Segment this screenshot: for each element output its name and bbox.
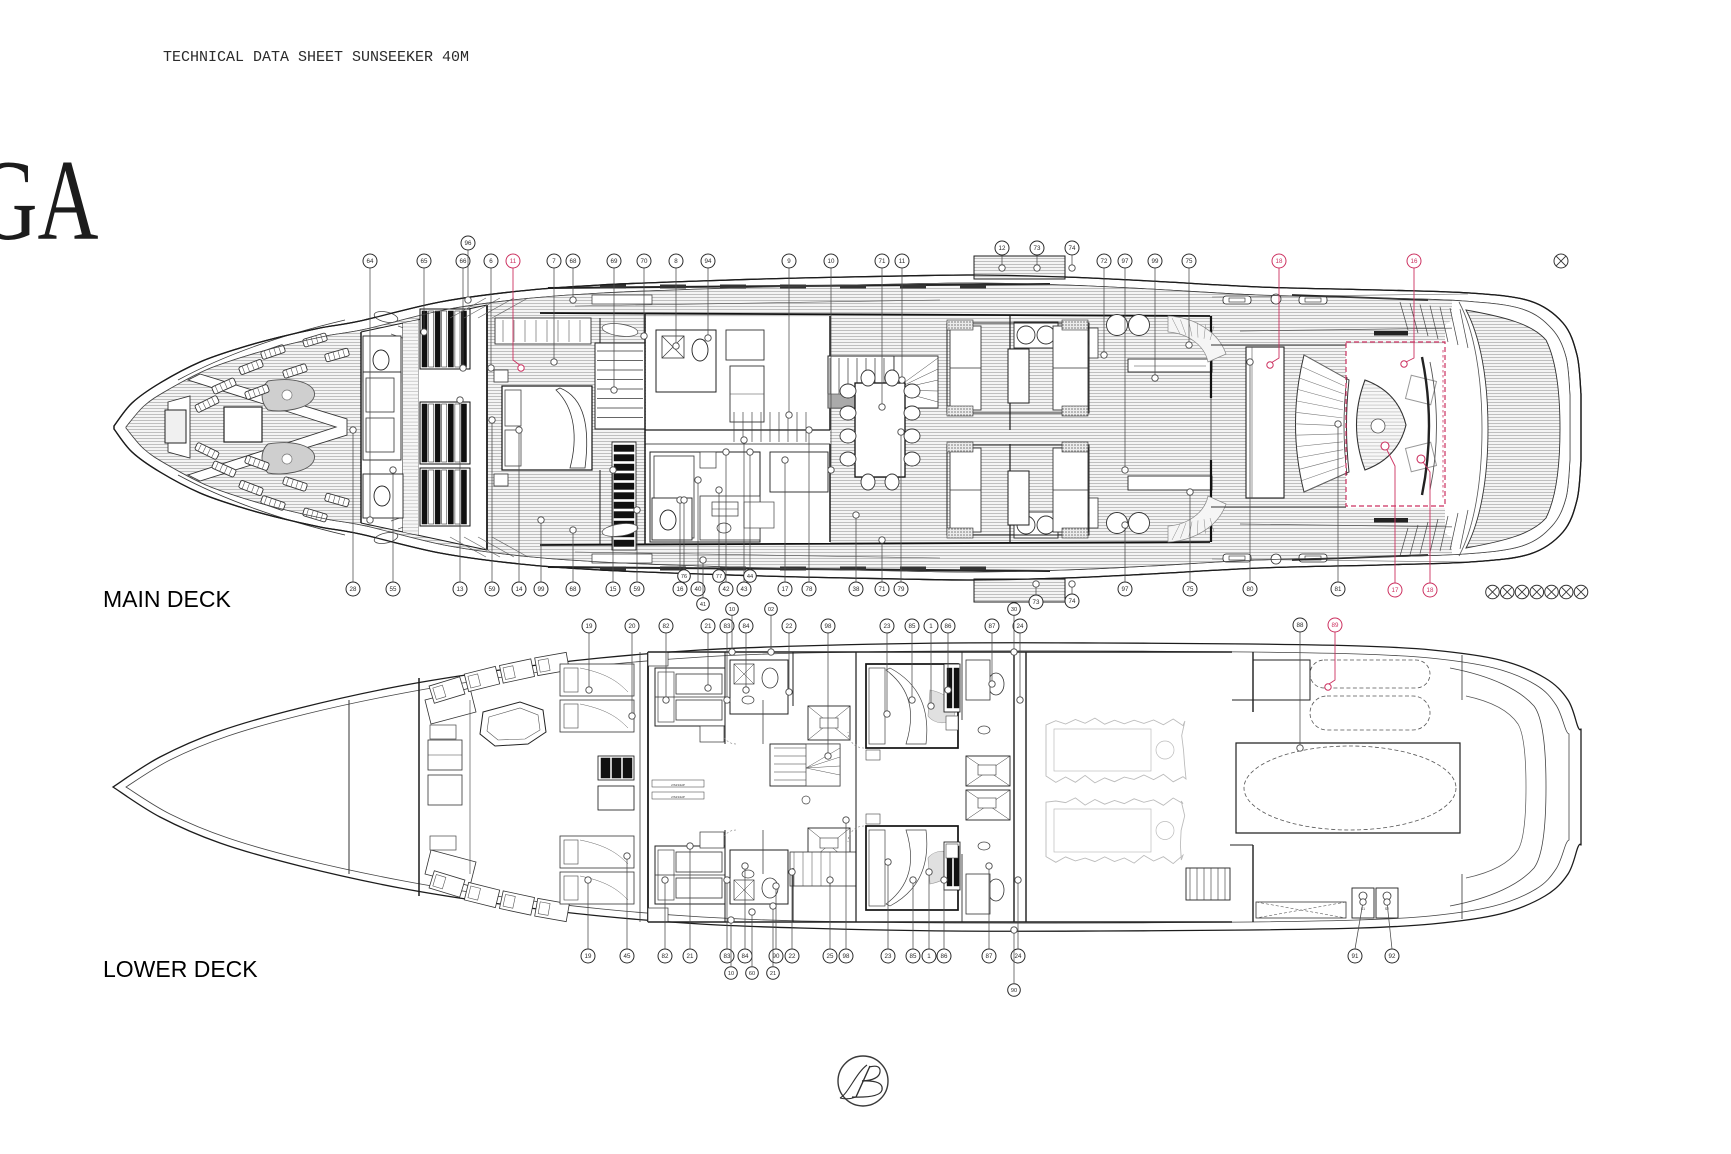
svg-text:43: 43 — [741, 586, 748, 593]
svg-text:96: 96 — [465, 240, 472, 247]
svg-text:87: 87 — [986, 953, 993, 960]
svg-text:55: 55 — [390, 586, 397, 593]
svg-text:10: 10 — [728, 971, 734, 977]
svg-text:18: 18 — [1276, 258, 1283, 265]
svg-text:30: 30 — [1011, 607, 1017, 613]
svg-text:45: 45 — [624, 953, 631, 960]
svg-text:38: 38 — [853, 586, 860, 593]
svg-text:TECHNICAL DATA SHEET SUNSEEKER: TECHNICAL DATA SHEET SUNSEEKER 40M — [163, 49, 469, 66]
svg-text:16: 16 — [677, 586, 684, 593]
svg-text:81: 81 — [1335, 586, 1342, 593]
svg-text:89: 89 — [1332, 622, 1339, 629]
svg-text:88: 88 — [1297, 622, 1304, 629]
svg-text:86: 86 — [945, 623, 952, 630]
svg-text:82: 82 — [662, 953, 669, 960]
svg-text:94: 94 — [705, 258, 712, 265]
svg-text:17: 17 — [782, 586, 789, 593]
svg-text:19: 19 — [585, 953, 592, 960]
svg-text:21: 21 — [770, 971, 776, 977]
svg-text:44: 44 — [747, 574, 753, 580]
svg-text:21: 21 — [687, 953, 694, 960]
svg-text:74: 74 — [1069, 245, 1076, 252]
svg-text:24: 24 — [1017, 623, 1024, 630]
svg-text:02: 02 — [768, 607, 774, 613]
svg-text:20: 20 — [629, 623, 636, 630]
svg-text:73: 73 — [1033, 599, 1040, 606]
svg-text:77: 77 — [716, 574, 722, 580]
svg-text:GA: GA — [0, 136, 99, 264]
svg-text:69: 69 — [611, 258, 618, 265]
svg-text:80: 80 — [1247, 586, 1254, 593]
svg-text:97: 97 — [1122, 586, 1129, 593]
svg-text:9: 9 — [787, 258, 791, 265]
svg-text:24: 24 — [1015, 953, 1022, 960]
svg-text:68: 68 — [570, 258, 577, 265]
svg-text:98: 98 — [825, 623, 832, 630]
svg-text:76: 76 — [681, 574, 687, 580]
svg-text:11: 11 — [899, 258, 906, 265]
svg-text:68: 68 — [570, 586, 577, 593]
svg-text:LOWER DECK: LOWER DECK — [103, 956, 258, 982]
svg-text:84: 84 — [743, 623, 750, 630]
svg-text:23: 23 — [884, 623, 891, 630]
svg-text:83: 83 — [724, 953, 731, 960]
svg-text:1: 1 — [929, 623, 933, 630]
svg-text:90: 90 — [773, 953, 780, 960]
svg-text:17: 17 — [1392, 587, 1399, 594]
svg-text:74: 74 — [1069, 598, 1076, 605]
svg-text:83: 83 — [724, 623, 731, 630]
svg-text:40: 40 — [695, 586, 702, 593]
svg-text:65: 65 — [421, 258, 428, 265]
svg-text:S2: S2 — [1385, 907, 1389, 911]
svg-text:25: 25 — [827, 953, 834, 960]
svg-text:85: 85 — [910, 953, 917, 960]
svg-text:99: 99 — [538, 586, 545, 593]
svg-text:72: 72 — [1101, 258, 1108, 265]
svg-text:13: 13 — [457, 586, 464, 593]
svg-text:22: 22 — [789, 953, 796, 960]
svg-text:90: 90 — [1011, 988, 1017, 994]
svg-text:82: 82 — [663, 623, 670, 630]
svg-text:41: 41 — [700, 602, 706, 608]
svg-text:7: 7 — [552, 258, 556, 265]
svg-text:14: 14 — [516, 586, 523, 593]
svg-text:59: 59 — [634, 586, 641, 593]
svg-text:10: 10 — [828, 258, 835, 265]
svg-text:71: 71 — [879, 586, 886, 593]
svg-text:59: 59 — [489, 586, 496, 593]
svg-text:19: 19 — [586, 623, 593, 630]
svg-text:99: 99 — [1152, 258, 1159, 265]
svg-text:60: 60 — [749, 971, 755, 977]
svg-text:6: 6 — [489, 258, 493, 265]
svg-text:21: 21 — [705, 623, 712, 630]
svg-text:18: 18 — [1427, 587, 1434, 594]
svg-text:79: 79 — [898, 586, 905, 593]
svg-text:64: 64 — [367, 258, 374, 265]
svg-text:71: 71 — [879, 258, 886, 265]
svg-text:10: 10 — [729, 607, 735, 613]
svg-text:11: 11 — [510, 258, 517, 265]
svg-text:8: 8 — [674, 258, 678, 265]
svg-text:16: 16 — [1411, 258, 1418, 265]
svg-text:2/S234HP: 2/S234HP — [671, 783, 685, 787]
svg-text:MAIN DECK: MAIN DECK — [103, 586, 231, 612]
svg-text:92: 92 — [1389, 953, 1396, 960]
svg-text:73: 73 — [1034, 245, 1041, 252]
svg-text:12: 12 — [999, 245, 1006, 252]
svg-text:97: 97 — [1122, 258, 1129, 265]
svg-text:75: 75 — [1186, 258, 1193, 265]
svg-text:98: 98 — [843, 953, 850, 960]
svg-text:75: 75 — [1187, 586, 1194, 593]
svg-text:70: 70 — [641, 258, 648, 265]
svg-text:2/S234HP: 2/S234HP — [671, 795, 685, 799]
svg-text:28: 28 — [350, 586, 357, 593]
svg-text:78: 78 — [806, 586, 813, 593]
svg-text:15: 15 — [610, 586, 617, 593]
svg-text:84: 84 — [742, 953, 749, 960]
svg-text:87: 87 — [989, 623, 996, 630]
svg-text:1: 1 — [927, 953, 931, 960]
svg-text:91: 91 — [1352, 953, 1359, 960]
svg-text:23: 23 — [885, 953, 892, 960]
svg-text:85: 85 — [909, 623, 916, 630]
svg-text:22: 22 — [786, 623, 793, 630]
svg-text:86: 86 — [941, 953, 948, 960]
svg-text:66: 66 — [460, 258, 467, 265]
svg-text:42: 42 — [723, 586, 730, 593]
